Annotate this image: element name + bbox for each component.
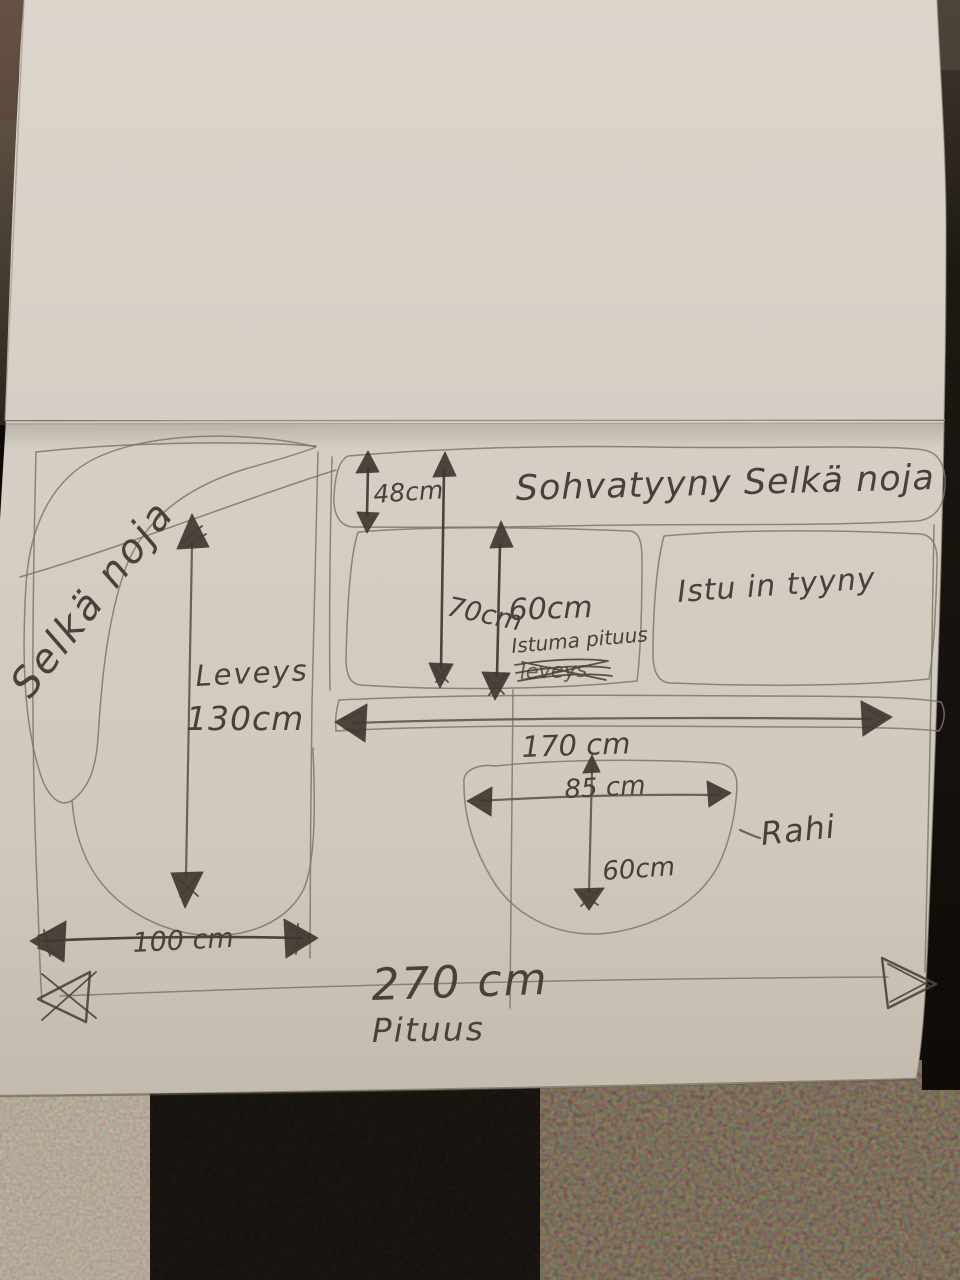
dim-60cm-seat: 60cm	[508, 590, 593, 628]
dim-270cm: 270 cm	[371, 954, 550, 1011]
label-ottoman: Rahi	[759, 807, 838, 853]
label-length: Pituus	[371, 1009, 485, 1050]
dim-130cm: 130cm	[186, 699, 304, 738]
fold-shadow	[4, 423, 945, 449]
dim-170cm: 170 cm	[521, 726, 631, 764]
label-width: Leveys	[195, 653, 310, 693]
fold-crease-line	[5, 420, 945, 421]
photo-of-sketch: Sohvatyyny Selkä noja Istu in tyyny Selk…	[0, 0, 960, 1280]
crossed-out-word: leveys	[519, 658, 587, 684]
sketch-canvas: Sohvatyyny Selkä noja Istu in tyyny Selk…	[0, 0, 960, 1280]
dim-85cm: 85 cm	[564, 771, 646, 805]
paper-top-page	[5, 0, 946, 420]
dim-100cm: 100 cm	[132, 923, 235, 959]
dim-48cm: 48cm	[372, 475, 444, 509]
carpet-gray-area	[0, 1075, 150, 1280]
dim-60cm-ottoman: 60cm	[601, 852, 676, 887]
